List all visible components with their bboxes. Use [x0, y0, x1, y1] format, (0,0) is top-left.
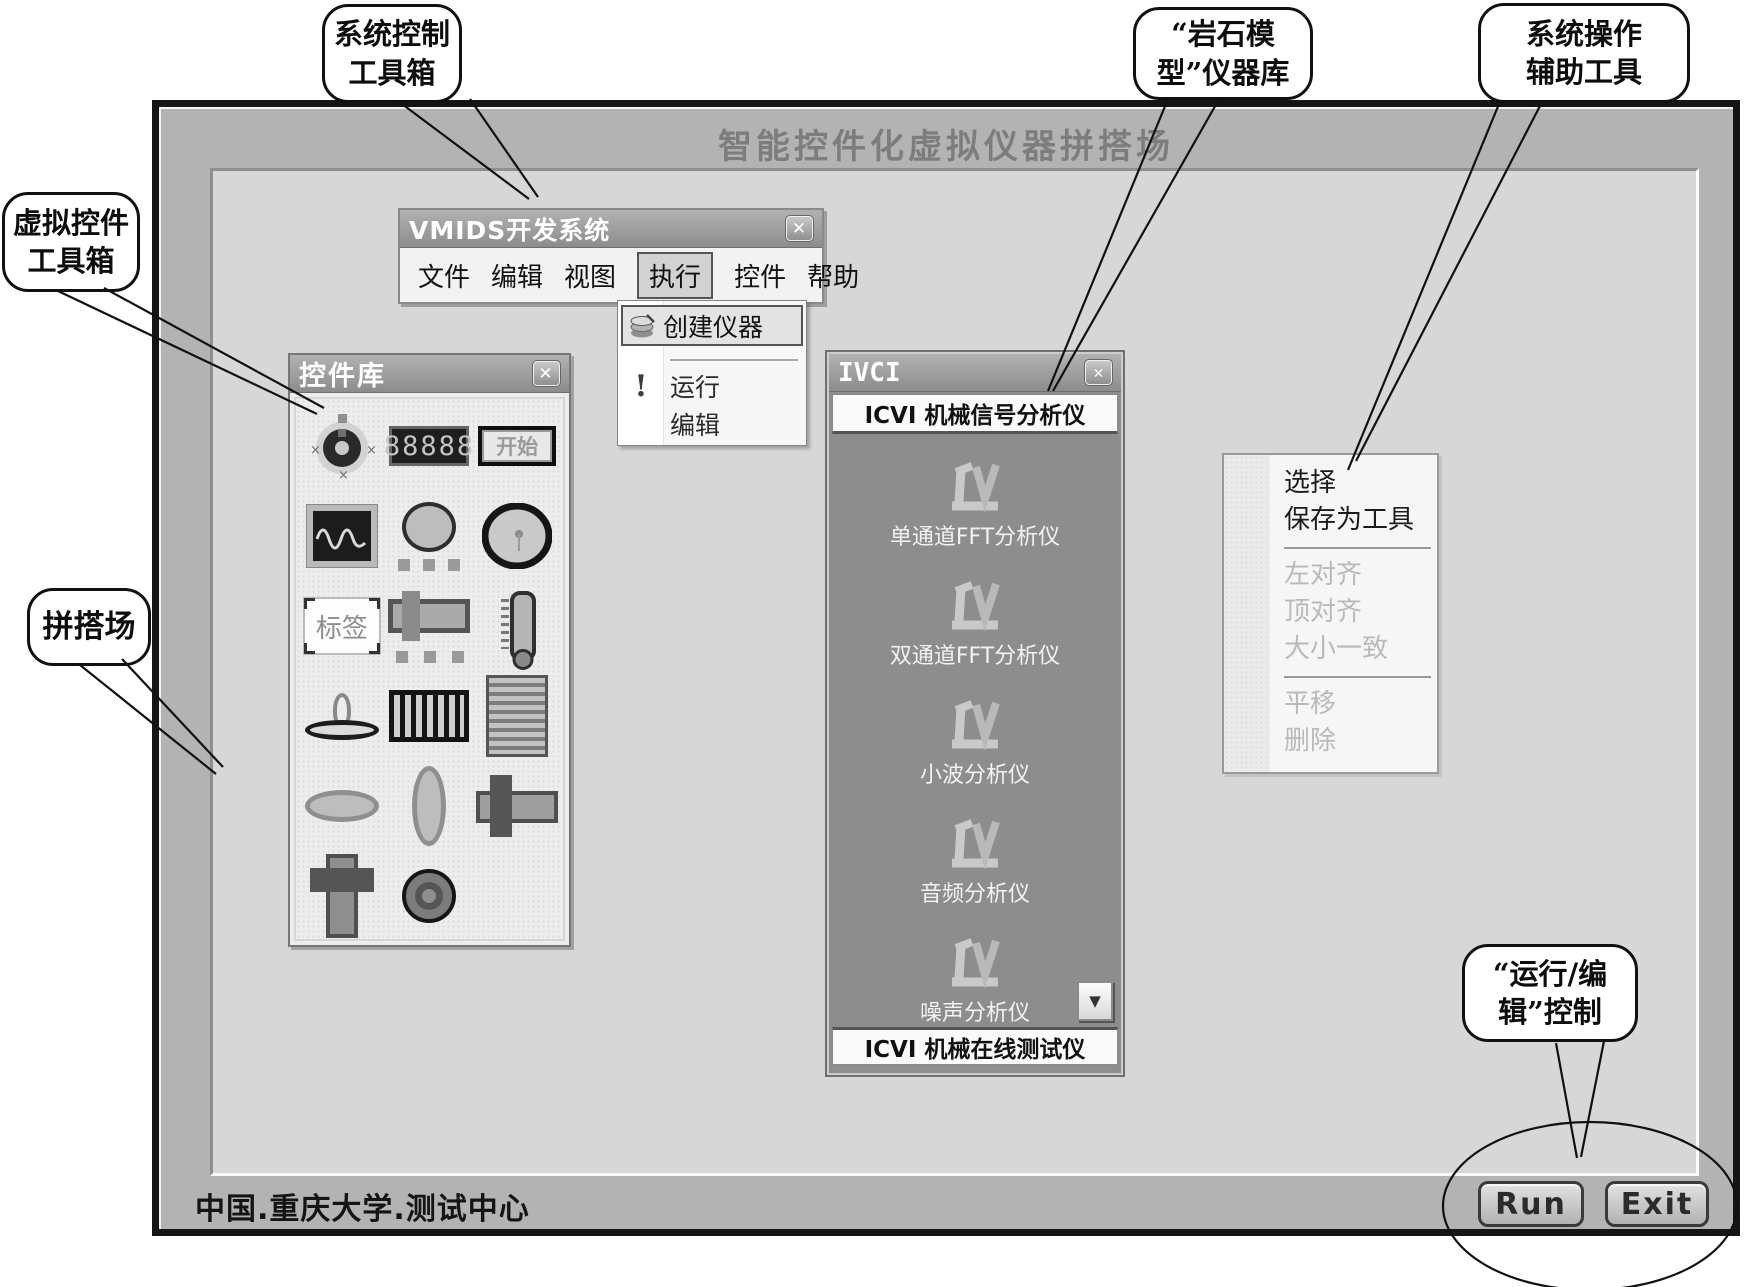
pipe-cross-horizontal-icon[interactable] [476, 775, 558, 837]
round-knob-icon[interactable] [398, 502, 460, 571]
control-library-palette: × × × 88888 开始 [294, 397, 565, 941]
ring-knob-icon[interactable] [401, 868, 457, 924]
vmids-window-title: VMIDS开发系统 [409, 211, 610, 247]
callout-line: “运行/编 [1493, 955, 1607, 993]
context-item-align-left: 左对齐 [1284, 557, 1431, 594]
callout-line: 型”仪器库 [1157, 54, 1290, 92]
start-button-icon[interactable]: 开始 [478, 426, 556, 466]
screenshot-canvas: 智能控件化虚拟仪器拼搭场 中国.重庆大学.测试中心 Run Exit VMIDS… [0, 0, 1745, 1287]
run-button[interactable]: Run [1478, 1181, 1584, 1227]
context-menu-separator [1284, 547, 1431, 549]
rotary-knob-icon[interactable]: × × × [309, 412, 375, 480]
context-menu-separator [1284, 676, 1431, 678]
vmids-menubar: 文件 编辑 视图 执行 控件 帮助 [400, 248, 822, 302]
vmids-window: VMIDS开发系统 ✕ 文件 编辑 视图 执行 控件 帮助 [398, 208, 824, 304]
dropdown-item-create-instrument[interactable]: 创建仪器 [621, 305, 803, 346]
dropdown-item-run[interactable]: ! 运行 [618, 367, 806, 405]
edit-item-label: 编辑 [664, 406, 720, 442]
menu-item-view[interactable]: 视图 [564, 257, 616, 294]
operation-context-menu: 选择 保存为工具 左对齐 顶对齐 大小一致 平移 删除 [1222, 453, 1439, 774]
svg-text:×: × [366, 443, 375, 458]
ivci-instrument-list: 单通道FFT分析仪 双通道FFT分析仪 小波分析仪 音频分析仪 噪声分析仪 [829, 436, 1121, 1031]
context-item-same-size: 大小一致 [1284, 631, 1431, 668]
menu-item-control[interactable]: 控件 [734, 257, 786, 294]
seven-segment-display-icon[interactable]: 88888 [389, 426, 469, 466]
execute-dropdown-menu: 创建仪器 ! 运行 编辑 [617, 300, 807, 446]
alcohol-lamp-icon[interactable] [305, 693, 379, 740]
gauge-meter-icon[interactable] [482, 503, 552, 569]
page-title: 智能控件化虚拟仪器拼搭场 [159, 119, 1733, 168]
vertical-tank-icon[interactable] [412, 766, 446, 846]
footer-credit-text: 中国.重庆大学.测试中心 [195, 1184, 530, 1228]
instrument-label: 双通道FFT分析仪 [890, 638, 1060, 670]
list-item-dual-fft[interactable]: 双通道FFT分析仪 [829, 555, 1121, 674]
control-library-title: 控件库 [299, 354, 386, 393]
lv-instrument-icon [945, 457, 1005, 513]
scroll-down-button[interactable]: ▼ [1077, 981, 1113, 1021]
callout-line: 工具箱 [348, 54, 435, 92]
seven-segment-value: 88888 [384, 431, 475, 462]
instrument-label: 小波分析仪 [920, 757, 1030, 789]
callout-assembly-field: 拼搭场 [27, 588, 151, 666]
menu-item-edit[interactable]: 编辑 [491, 257, 543, 294]
list-item-single-fft[interactable]: 单通道FFT分析仪 [829, 436, 1121, 555]
callout-line: 拼搭场 [43, 607, 136, 648]
instrument-label: 单通道FFT分析仪 [890, 519, 1060, 551]
instrument-label: 噪声分析仪 [920, 995, 1030, 1027]
thermometer-icon[interactable] [498, 591, 536, 661]
svg-text:×: × [310, 443, 321, 458]
run-exclamation-icon: ! [618, 369, 664, 404]
oscilloscope-icon[interactable] [306, 504, 378, 568]
text-label-caption: 标签 [316, 608, 368, 645]
lv-instrument-icon [945, 814, 1005, 870]
close-icon[interactable]: ✕ [786, 216, 813, 241]
create-instrument-label: 创建仪器 [663, 308, 763, 344]
ivci-window: IVCI ✕ ICVI 机械信号分析仪 单通道FFT分析仪 双通道FFT分析仪 … [827, 352, 1123, 1075]
list-item-audio[interactable]: 音频分析仪 [829, 793, 1121, 912]
context-item-save-as-tool[interactable]: 保存为工具 [1284, 502, 1431, 539]
instrument-label: 音频分析仪 [920, 876, 1030, 908]
menu-item-file[interactable]: 文件 [418, 257, 470, 294]
horizontal-tank-icon[interactable] [305, 790, 379, 822]
callout-line: 辅助工具 [1526, 53, 1642, 91]
menu-item-execute[interactable]: 执行 [637, 252, 713, 299]
callout-line: 辑”控制 [1498, 993, 1602, 1031]
run-item-label: 运行 [664, 368, 720, 404]
callout-rock-model-library: “岩石模 型”仪器库 [1133, 7, 1313, 100]
callout-line: 系统操作 [1526, 15, 1642, 53]
context-item-select[interactable]: 选择 [1284, 465, 1431, 502]
exit-button[interactable]: Exit [1605, 1181, 1709, 1227]
control-library-window: 控件库 ✕ × × × 88888 开始 [288, 353, 571, 947]
vmids-titlebar[interactable]: VMIDS开发系统 ✕ [400, 210, 822, 248]
callout-line: 系统控制 [334, 15, 450, 53]
pipe-cross-vertical-icon[interactable] [310, 854, 374, 938]
close-icon[interactable]: ✕ [533, 361, 560, 386]
control-library-titlebar[interactable]: 控件库 ✕ [290, 355, 569, 393]
dropdown-separator [670, 359, 798, 361]
start-button-label: 开始 [482, 430, 552, 462]
context-item-delete: 删除 [1284, 723, 1431, 760]
ivci-window-title: IVCI [838, 358, 901, 388]
ivci-footer-bar[interactable]: ICVI 机械在线测试仪 [832, 1027, 1118, 1065]
create-instrument-icon [623, 313, 663, 339]
list-item-wavelet[interactable]: 小波分析仪 [829, 674, 1121, 793]
callout-system-control-toolbox: 系统控制 工具箱 [322, 4, 462, 103]
callout-system-operation-tools: 系统操作 辅助工具 [1478, 3, 1690, 103]
chevron-down-icon: ▼ [1089, 992, 1101, 1010]
text-label-icon[interactable]: 标签 [303, 597, 381, 655]
menu-item-help[interactable]: 帮助 [807, 257, 859, 294]
ivci-titlebar[interactable]: IVCI ✕ [829, 354, 1121, 392]
callout-line: “岩石模 [1171, 15, 1275, 53]
horizontal-grille-icon[interactable] [486, 675, 548, 757]
svg-text:×: × [338, 468, 349, 480]
close-icon[interactable]: ✕ [1085, 360, 1112, 385]
callout-run-edit-control: “运行/编 辑”控制 [1462, 944, 1638, 1042]
callout-line: 工具箱 [27, 242, 114, 280]
horizontal-slider-icon[interactable] [388, 589, 470, 663]
vertical-grille-icon[interactable] [389, 690, 469, 742]
dropdown-item-edit[interactable]: 编辑 [618, 405, 806, 443]
context-menu-gutter [1224, 455, 1270, 772]
lv-instrument-icon [945, 933, 1005, 989]
lv-instrument-icon [945, 576, 1005, 632]
context-item-translate: 平移 [1284, 686, 1431, 723]
callout-virtual-control-toolbox: 虚拟控件 工具箱 [2, 192, 140, 292]
lv-instrument-icon [945, 695, 1005, 751]
ivci-header-bar[interactable]: ICVI 机械信号分析仪 [832, 394, 1118, 434]
context-item-align-top: 顶对齐 [1284, 594, 1431, 631]
callout-line: 虚拟控件 [13, 204, 129, 242]
